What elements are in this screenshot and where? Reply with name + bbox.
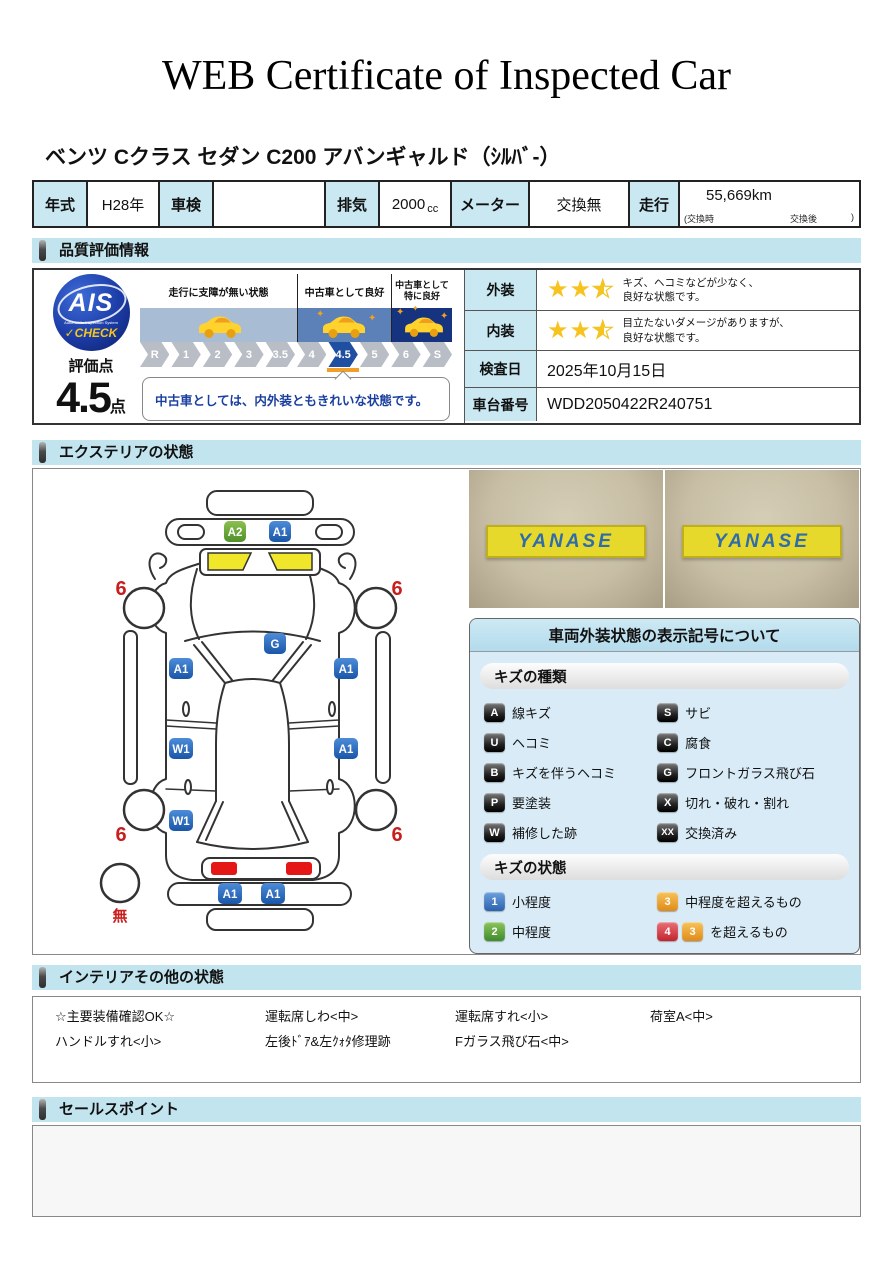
legend-item: Bキズを伴うヘコミ	[484, 762, 657, 783]
header-accent-bar	[39, 442, 46, 463]
inspection-date-value: 2025年10月15日	[537, 351, 859, 387]
legend-item-label: キズを伴うヘコミ	[512, 763, 616, 782]
ais-logo-block: AIS Automobile Inspection System ✓CHECK …	[40, 272, 142, 420]
grade-zone-band: ✦ ✦ ✦ ✦ ✦	[140, 308, 452, 342]
legend-item-label: 小程度	[512, 892, 551, 911]
star-half-icon: ★★	[592, 319, 615, 343]
mileage-note-mid: 交換後	[790, 212, 817, 225]
meter-value: 交換無	[530, 182, 630, 226]
exterior-rating-row: 外装 ★★★★ キズ、ヘコミなどが少なく、 良好な状態です。	[465, 270, 859, 310]
svg-text:A1: A1	[339, 744, 354, 756]
header-accent-bar	[39, 240, 46, 261]
legend-item: 43を超えるもの	[657, 921, 851, 942]
interior-rating-value: ★★★★ 目立たないダメージがありますが、 良好な状態です。	[537, 311, 859, 350]
ais-name: AIS	[53, 289, 130, 318]
inspection-photo-1: YANASE	[469, 470, 663, 608]
headlight-highlight-left	[208, 553, 251, 570]
rocker-panel-right	[376, 632, 390, 783]
trunk-strip	[207, 909, 313, 930]
legend-item-label: サビ	[685, 703, 711, 722]
score-unit: 点	[110, 399, 126, 416]
legend-item: Uヘコミ	[484, 732, 657, 753]
exterior-rating-text: キズ、ヘコミなどが少なく、 良好な状態です。	[623, 276, 760, 304]
legend-item-label: 中程度を超えるもの	[685, 892, 802, 911]
inspection-photos: YANASE YANASE	[469, 470, 859, 608]
interior-rating-text: 目立たないダメージがありますが、 良好な状態です。	[623, 316, 790, 344]
svg-text:G: G	[271, 639, 280, 651]
interior-item: ☆主要装備確認OK☆	[55, 1006, 265, 1025]
wheel-rear-left	[124, 790, 164, 830]
star-rating: ★★★★	[547, 278, 615, 302]
spec-table: 年式 H28年 車検 排気 2000cc メーター 交換無 走行 55,669k…	[32, 180, 861, 228]
legend-item-label: 要塗装	[512, 793, 551, 812]
wheel-front-right	[356, 588, 396, 628]
exterior-rating-label: 外装	[465, 270, 537, 310]
legend-item-label: フロントガラス飛び石	[685, 763, 815, 782]
header-accent-bar	[39, 1099, 46, 1120]
code-b-icon: B	[484, 763, 505, 782]
star-rating: ★★★★	[547, 319, 615, 343]
legend-item-label: 交換済み	[685, 823, 737, 842]
damage-legend: 車両外装状態の表示記号について キズの種類 A線キズ Sサビ Uヘコミ C腐食 …	[469, 618, 860, 954]
code-xx-icon: XX	[657, 823, 678, 842]
code-w-icon: W	[484, 823, 505, 842]
year-value: H28年	[88, 182, 160, 226]
code-p-icon: P	[484, 793, 505, 812]
sparkle-icon: ✦	[368, 314, 376, 324]
section-header-interior: インテリアその他の状態	[32, 965, 861, 990]
legend-item: P要塗装	[484, 792, 657, 813]
tire-mark: 6	[115, 578, 126, 600]
scale-step-3: 3	[234, 342, 263, 367]
tire-mark: 6	[391, 578, 402, 600]
scale-step-1: 1	[171, 342, 200, 367]
vin-value: WDD2050422R240751	[537, 388, 859, 421]
exterior-condition-box: A2 A1 G A1 A1 W1 A1 W1 A1 A1	[32, 468, 861, 955]
legend-title: 車両外装状態の表示記号について	[470, 619, 859, 652]
displacement-value: 2000cc	[380, 182, 452, 226]
legend-states-grid: 1小程度 3中程度を超えるもの 2中程度 43を超えるもの	[470, 880, 859, 942]
score-label: 評価点	[40, 355, 142, 376]
year-label: 年式	[34, 182, 88, 226]
section-title: インテリアその他の状態	[59, 965, 861, 990]
zone-label-1: 走行に支障が無い状態	[140, 274, 298, 308]
svg-text:W1: W1	[172, 816, 190, 828]
car-icon-sparkle	[320, 314, 368, 340]
star-full-icon: ★	[547, 317, 570, 344]
vin-row: 車台番号 WDD2050422R240751	[465, 387, 859, 421]
legend-states-header: キズの状態	[480, 854, 849, 880]
interior-rating-row: 内装 ★★★★ 目立たないダメージがありますが、 良好な状態です。	[465, 310, 859, 350]
ais-logo: AIS Automobile Inspection System ✓CHECK	[53, 274, 130, 351]
legend-item: 3中程度を超えるもの	[657, 891, 851, 912]
mileage-value: 55,669km	[706, 187, 859, 204]
displacement-number: 2000	[392, 196, 425, 213]
code-a-icon: A	[484, 703, 505, 722]
mileage-cell: 55,669km (交換時 交換後 )	[680, 182, 859, 226]
exterior-rating-value: ★★★★ キズ、ヘコミなどが少なく、 良好な状態です。	[537, 270, 859, 310]
svg-text:A1: A1	[339, 664, 354, 676]
legend-item-label: ヘコミ	[512, 733, 551, 752]
tire-mark: 6	[115, 824, 126, 846]
spare-tire	[101, 864, 139, 902]
section-title: 品質評価情報	[59, 238, 861, 263]
interior-item	[650, 1031, 860, 1050]
mileage-note-open: (交換時	[684, 212, 714, 225]
yanase-sign: YANASE	[682, 525, 841, 558]
state-2-icon: 2	[484, 922, 505, 941]
header-accent-bar	[39, 967, 46, 988]
interior-item: 荷室A<中>	[650, 1006, 860, 1025]
front-cowl-strip	[207, 491, 313, 515]
interior-rating-label: 内装	[465, 311, 537, 350]
car-exterior-diagram: A2 A1 G A1 A1 W1 A1 W1 A1 A1	[45, 469, 460, 952]
legend-item-label: を超えるもの	[710, 922, 788, 941]
legend-item: A線キズ	[484, 702, 657, 723]
svg-text:W1: W1	[172, 744, 190, 756]
sparkle-icon: ✦	[396, 308, 404, 318]
svg-text:A1: A1	[223, 889, 238, 901]
sparkle-icon: ✦	[412, 305, 419, 313]
grade-scale-block: 走行に支障が無い状態 中古車として良好 中古車として 特に良好	[140, 274, 452, 423]
section-header-sales: セールスポイント	[32, 1097, 861, 1122]
ais-subtitle: Automobile Inspection System	[53, 320, 130, 325]
sparkle-icon: ✦	[316, 310, 324, 320]
car-icon	[196, 314, 244, 340]
interior-item: 運転席しわ<中>	[265, 1006, 455, 1025]
mileage-note-close: )	[851, 212, 854, 222]
sparkle-icon: ✦	[440, 312, 448, 322]
interior-items-grid: ☆主要装備確認OK☆ 運転席しわ<中> 運転席すれ<小> 荷室A<中> ハンドル…	[33, 997, 860, 1050]
code-c-icon: C	[657, 733, 678, 752]
code-x-icon: X	[657, 793, 678, 812]
yanase-sign: YANASE	[486, 525, 645, 558]
interior-item: ハンドルすれ<小>	[55, 1031, 265, 1050]
star-full-icon: ★	[547, 276, 570, 303]
code-u-icon: U	[484, 733, 505, 752]
code-g-icon: G	[657, 763, 678, 782]
section-header-exterior: エクステリアの状態	[32, 440, 861, 465]
section-title: セールスポイント	[59, 1097, 861, 1122]
ais-check-label: ✓CHECK	[53, 326, 130, 340]
legend-item-label: 切れ・破れ・割れ	[685, 793, 789, 812]
inspection-date-label: 検査日	[465, 351, 537, 387]
car-body-outline	[150, 558, 355, 881]
svg-text:A1: A1	[174, 664, 189, 676]
interior-item: 運転席すれ<小>	[455, 1006, 650, 1025]
scale-step-s: S	[423, 342, 452, 367]
rocker-panel-left	[124, 631, 137, 784]
star-full-icon: ★	[570, 276, 593, 303]
door-handle	[327, 780, 333, 794]
sales-point-box	[32, 1125, 861, 1217]
grade-scale: R 1 2 3 3.5 4 4.5 5 6 S	[140, 342, 452, 367]
legend-item: X切れ・破れ・割れ	[657, 792, 851, 813]
state-4-icon: 4	[657, 922, 678, 941]
scale-step-5: 5	[360, 342, 389, 367]
taillight-highlight-left	[211, 862, 237, 875]
scale-step-3-5: 3.5	[266, 342, 295, 367]
state-3-icon: 3	[657, 892, 678, 911]
svg-text:A1: A1	[266, 889, 281, 901]
grade-zone-labels: 走行に支障が無い状態 中古車として良好 中古車として 特に良好	[140, 274, 452, 308]
inspection-value	[214, 182, 326, 226]
star-half-icon: ★★	[592, 278, 615, 302]
grade-comment-bubble: 中古車としては、内外装ともきれいな状態です。	[142, 377, 450, 421]
wheel-front-left	[124, 588, 164, 628]
interior-item: 左後ﾄﾞｱ&左ｸｫﾀ修理跡	[265, 1031, 455, 1050]
legend-item: C腐食	[657, 732, 851, 753]
legend-item: W補修した跡	[484, 822, 657, 843]
door-handle	[183, 702, 189, 716]
taillight-highlight-right	[286, 862, 312, 875]
score-value-line: 4.5点	[40, 377, 142, 420]
mileage-notes: (交換時 交換後 )	[680, 212, 859, 224]
legend-item: 2中程度	[484, 921, 657, 942]
quality-detail-table: 外装 ★★★★ キズ、ヘコミなどが少なく、 良好な状態です。 内装 ★★★★ 目…	[464, 270, 859, 423]
spare-mark: 無	[112, 907, 127, 925]
fog-lamp-right	[316, 525, 342, 539]
displacement-label: 排気	[326, 182, 380, 226]
meter-label: メーター	[452, 182, 530, 226]
certificate-page: WEB Certificate of Inspected Car ベンツ Cクラ…	[0, 0, 893, 1263]
mileage-label: 走行	[630, 182, 680, 226]
zone-label-3: 中古車として 特に良好	[392, 274, 452, 308]
state-1-icon: 1	[484, 892, 505, 911]
rear-bumper	[168, 883, 351, 905]
legend-item: XX交換済み	[657, 822, 851, 843]
legend-kinds-grid: A線キズ Sサビ Uヘコミ C腐食 Bキズを伴うヘコミ Gフロントガラス飛び石 …	[470, 689, 859, 843]
legend-kinds-header: キズの種類	[480, 663, 849, 689]
score-number: 4.5	[56, 374, 110, 422]
svg-text:A1: A1	[273, 527, 288, 539]
section-title: エクステリアの状態	[59, 440, 861, 465]
headlight-highlight-right	[269, 553, 312, 570]
door-handle	[185, 780, 191, 794]
fog-lamp-left	[178, 525, 204, 539]
legend-item: Sサビ	[657, 702, 851, 723]
svg-text:A2: A2	[228, 527, 243, 539]
door-handle	[329, 702, 335, 716]
scale-step-4-5-active: 4.5	[328, 342, 357, 367]
tire-mark: 6	[391, 824, 402, 846]
section-header-quality: 品質評価情報	[32, 238, 861, 263]
legend-item-label: 腐食	[685, 733, 711, 752]
interior-item: Fガラス飛び石<中>	[455, 1031, 650, 1050]
star-full-icon: ★	[570, 317, 593, 344]
inspection-label: 車検	[160, 182, 214, 226]
code-s-icon: S	[657, 703, 678, 722]
state-3-icon: 3	[682, 922, 703, 941]
legend-item: Gフロントガラス飛び石	[657, 762, 851, 783]
legend-item-label: 線キズ	[512, 703, 551, 722]
car-name: ベンツ Cクラス セダン C200 アバンギャルド（ｼﾙﾊﾞ-）	[45, 141, 561, 171]
displacement-unit: cc	[427, 203, 438, 215]
inspection-date-row: 検査日 2025年10月15日	[465, 350, 859, 387]
legend-item-label: 中程度	[512, 922, 551, 941]
scale-step-r: R	[140, 342, 169, 367]
quality-eval-box: AIS Automobile Inspection System ✓CHECK …	[32, 268, 861, 425]
legend-item: 1小程度	[484, 891, 657, 912]
inspection-photo-2: YANASE	[665, 470, 859, 608]
scale-step-6: 6	[391, 342, 420, 367]
legend-item-label: 補修した跡	[512, 823, 577, 842]
scale-step-4: 4	[297, 342, 326, 367]
scale-step-2: 2	[203, 342, 232, 367]
vin-label: 車台番号	[465, 388, 537, 421]
zone-label-2: 中古車として良好	[298, 274, 392, 308]
wheel-rear-right	[356, 790, 396, 830]
page-title: WEB Certificate of Inspected Car	[0, 52, 893, 100]
interior-condition-box: ☆主要装備確認OK☆ 運転席しわ<中> 運転席すれ<小> 荷室A<中> ハンドル…	[32, 996, 861, 1083]
